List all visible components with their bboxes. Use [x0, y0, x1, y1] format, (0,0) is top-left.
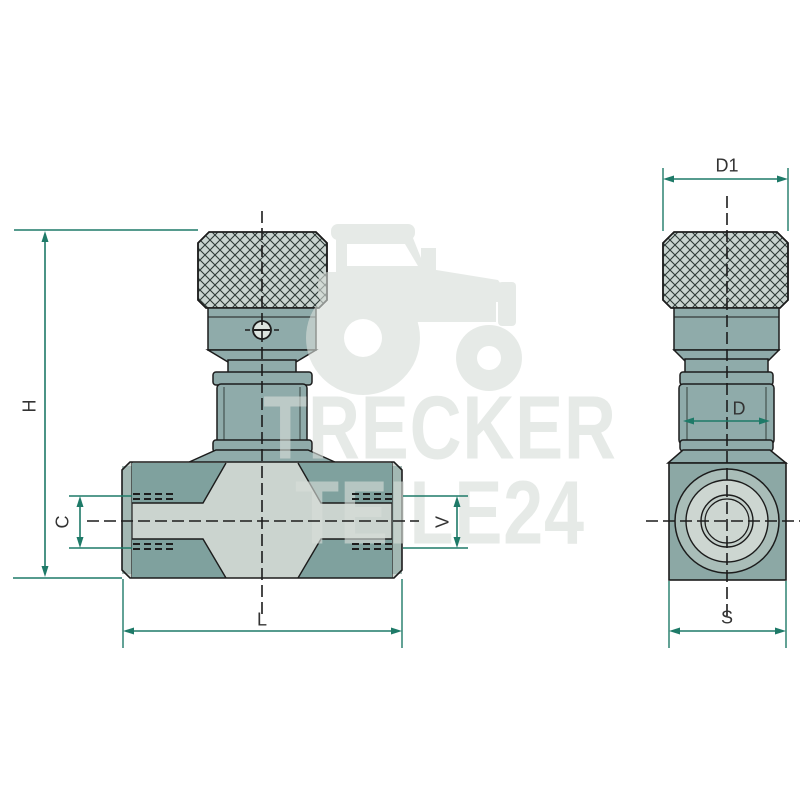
- dim-label-l: L: [257, 610, 267, 631]
- centerlines: [87, 196, 800, 617]
- dimension-annotations: [0, 0, 800, 800]
- dim-label-s: S: [721, 608, 733, 629]
- dim-label-c: C: [53, 516, 74, 529]
- dim-label-d1: D1: [715, 156, 738, 177]
- dim-label-h: H: [20, 400, 41, 413]
- dimension-D1: [663, 168, 788, 231]
- dim-label-v: V: [433, 516, 454, 528]
- dim-label-d: D: [733, 399, 746, 420]
- technical-drawing-canvas: TRECKER TEILE24: [0, 0, 800, 800]
- dimension-H: [13, 230, 198, 578]
- dimension-C: [69, 496, 132, 548]
